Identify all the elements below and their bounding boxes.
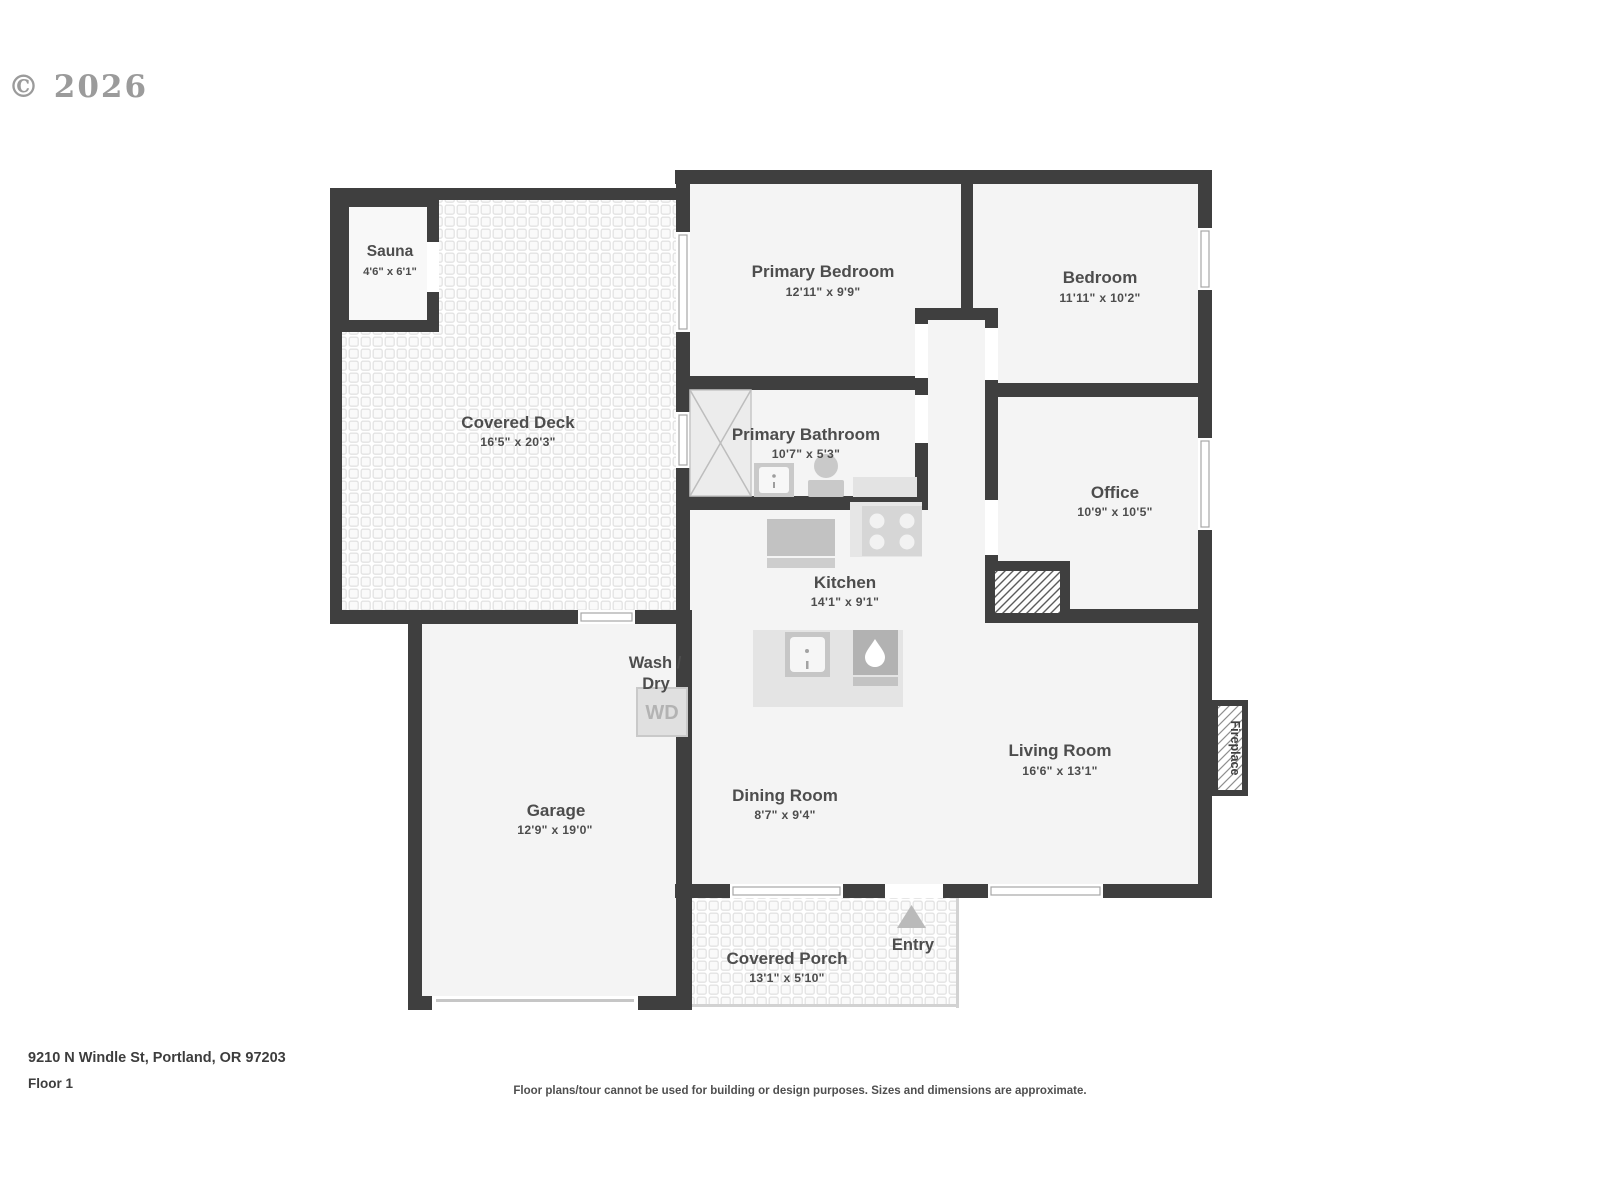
floorplan-svg: WD Sauna 4'6" x 6'1" Covered Deck 16'5" … bbox=[0, 0, 1600, 1200]
wall-primary-bedroom-bottom bbox=[676, 376, 928, 390]
sauna-label: Sauna bbox=[367, 243, 414, 260]
bathroom-sink-icon bbox=[754, 463, 794, 497]
primary-bedroom-door bbox=[915, 324, 928, 378]
window-office-right bbox=[1198, 438, 1212, 530]
kitchen-label: Kitchen bbox=[814, 573, 876, 592]
wash-dry-label-line2: Dry bbox=[642, 675, 670, 693]
wall-deck-top bbox=[330, 188, 687, 200]
window-bedroom-right bbox=[1198, 228, 1212, 290]
covered-porch-label: Covered Porch bbox=[727, 949, 848, 968]
refrigerator-icon bbox=[767, 519, 835, 568]
porch-edge-right bbox=[956, 898, 959, 1008]
wall-house-top bbox=[675, 170, 1212, 184]
bathroom-door bbox=[915, 395, 928, 443]
wall-bedroom-divider bbox=[961, 170, 973, 310]
kitchen-sink-icon bbox=[853, 630, 898, 686]
wall-deck-bottom bbox=[330, 610, 690, 624]
window-primary-bedroom-left bbox=[676, 232, 690, 332]
living-room-dims: 16'6" x 13'1" bbox=[1022, 764, 1097, 778]
covered-deck-label: Covered Deck bbox=[461, 413, 575, 432]
garage-door-opening bbox=[432, 996, 638, 1010]
stove-icon bbox=[862, 506, 922, 556]
disclaimer-text: Floor plans/tour cannot be used for buil… bbox=[513, 1085, 1086, 1097]
wall-garage-left bbox=[408, 624, 422, 1010]
kitchen-dims: 14'1" x 9'1" bbox=[811, 595, 879, 609]
washer-dryer-abbr: WD bbox=[645, 702, 678, 724]
wall-hall-top bbox=[915, 308, 998, 320]
sauna-door-opening bbox=[427, 242, 439, 292]
entry-label: Entry bbox=[892, 936, 935, 954]
bedroom-dims: 11'11" x 10'2" bbox=[1059, 291, 1140, 305]
kitchen-island bbox=[753, 630, 903, 707]
bedroom-door bbox=[985, 328, 998, 380]
wash-dry-label-line1: Wash / bbox=[629, 654, 682, 672]
office-label: Office bbox=[1091, 483, 1139, 502]
covered-deck-dims: 16'5" x 20'3" bbox=[480, 435, 555, 449]
floorplan-page: WD Sauna 4'6" x 6'1" Covered Deck 16'5" … bbox=[0, 0, 1600, 1200]
office-dims: 10'9" x 10'5" bbox=[1077, 505, 1152, 519]
covered-porch-dims: 13'1" x 5'10" bbox=[749, 971, 824, 985]
primary-bedroom-dims: 12'11" x 9'9" bbox=[786, 285, 861, 299]
fireplace-label: Fireplace bbox=[1228, 721, 1242, 776]
sauna-room bbox=[337, 195, 439, 332]
closet-hatch bbox=[995, 571, 1060, 613]
sauna-dims: 4'6" x 6'1" bbox=[363, 266, 417, 278]
window-living-bottom bbox=[988, 884, 1103, 898]
garage-door-line bbox=[436, 999, 634, 1002]
dishwasher-icon bbox=[785, 632, 830, 677]
bathroom-counter bbox=[853, 477, 917, 497]
wall-deck-left bbox=[330, 188, 342, 624]
dining-room-label: Dining Room bbox=[732, 786, 838, 805]
deck-garage-door bbox=[578, 610, 635, 624]
primary-bathroom-label: Primary Bathroom bbox=[732, 425, 880, 444]
entry-door-opening bbox=[885, 884, 943, 898]
office-door bbox=[985, 500, 998, 555]
window-dining-bottom bbox=[730, 884, 843, 898]
primary-bedroom-label: Primary Bedroom bbox=[752, 262, 895, 281]
porch-edge-bottom bbox=[690, 1004, 959, 1007]
property-address: 9210 N Windle St, Portland, OR 97203 bbox=[28, 1050, 286, 1066]
primary-bathroom-dims: 10'7" x 5'3" bbox=[772, 447, 840, 461]
wall-office-bottom bbox=[1070, 609, 1212, 623]
washer-dryer-unit: WD bbox=[637, 688, 687, 736]
garage-dims: 12'9" x 19'0" bbox=[517, 823, 592, 837]
wall-office-top bbox=[985, 383, 1212, 397]
window-bathroom-left bbox=[676, 412, 690, 468]
garage-label: Garage bbox=[527, 801, 586, 820]
dining-room-dims: 8'7" x 9'4" bbox=[754, 808, 815, 822]
floor-label: Floor 1 bbox=[28, 1076, 73, 1091]
bedroom-label: Bedroom bbox=[1063, 268, 1138, 287]
sauna-floor bbox=[349, 207, 427, 320]
living-room-label: Living Room bbox=[1009, 741, 1112, 760]
copyright-watermark: © 2026 bbox=[8, 69, 148, 105]
